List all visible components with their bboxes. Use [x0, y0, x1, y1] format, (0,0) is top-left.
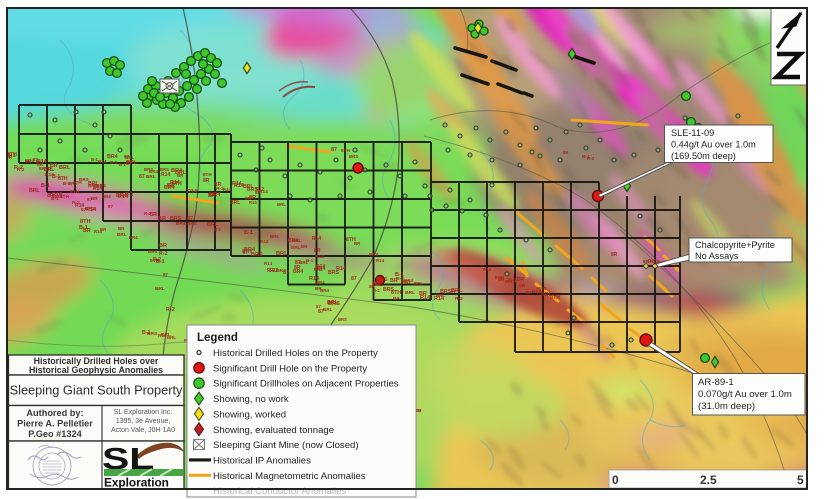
- svg-text:Showing, worked: Showing, worked: [213, 409, 286, 420]
- svg-text:B-1: B-1: [110, 160, 118, 165]
- svg-text:BRL: BRL: [291, 245, 301, 250]
- svg-text:R-2: R-2: [17, 167, 25, 172]
- svg-text:BRL: BRL: [451, 288, 463, 294]
- svg-text:87: 87: [139, 174, 145, 180]
- svg-text:R14: R14: [312, 236, 321, 242]
- svg-text:R-2: R-2: [267, 268, 275, 274]
- svg-text:R14: R14: [161, 172, 171, 178]
- svg-text:R14: R14: [376, 258, 385, 263]
- svg-text:B-1: B-1: [79, 225, 88, 231]
- svg-text:R-2: R-2: [396, 276, 404, 282]
- svg-text:R14: R14: [434, 296, 445, 302]
- svg-text:87: 87: [526, 290, 532, 296]
- svg-text:BR4: BR4: [293, 269, 303, 275]
- svg-text:8R: 8R: [203, 178, 210, 184]
- svg-text:BR4: BR4: [102, 194, 111, 199]
- svg-text:Chalcopyrite+Pyrite: Chalcopyrite+Pyrite: [695, 240, 775, 250]
- svg-text:BRL: BRL: [270, 234, 279, 239]
- svg-text:BR4: BR4: [320, 288, 329, 293]
- svg-text:BRS: BRS: [369, 252, 378, 257]
- svg-text:8TH: 8TH: [70, 189, 80, 195]
- svg-text:BR: BR: [208, 193, 216, 199]
- svg-text:B-1: B-1: [142, 330, 150, 336]
- svg-text:Significant Drill Hole on the: Significant Drill Hole on the Property: [213, 363, 367, 374]
- svg-text:BRS: BRS: [532, 289, 542, 294]
- svg-text:BRS: BRS: [187, 221, 197, 226]
- svg-text:R14: R14: [223, 187, 232, 192]
- svg-text:Sleeping Giant South Property: Sleeping Giant South Property: [10, 383, 183, 398]
- svg-text:8TH: 8TH: [7, 152, 17, 158]
- svg-text:8R: 8R: [314, 248, 321, 254]
- svg-text:Showing, no work: Showing, no work: [213, 394, 289, 405]
- svg-text:8R: 8R: [519, 283, 526, 289]
- svg-text:BR: BR: [393, 296, 400, 301]
- svg-text:BR4: BR4: [107, 154, 118, 160]
- svg-text:Historical Conductor Anomalies: Historical Conductor Anomalies: [213, 486, 347, 497]
- svg-text:R14: R14: [187, 189, 198, 195]
- svg-text:P.Geo #1324: P.Geo #1324: [28, 429, 82, 439]
- svg-text:0: 0: [612, 473, 619, 487]
- svg-text:B-1: B-1: [582, 154, 590, 160]
- svg-text:(169.50m deep): (169.50m deep): [671, 151, 736, 161]
- svg-text:B-1: B-1: [244, 230, 253, 236]
- svg-text:BRL: BRL: [327, 300, 339, 306]
- svg-text:Pierre A. Pelletier: Pierre A. Pelletier: [17, 419, 93, 429]
- svg-text:8R: 8R: [498, 277, 505, 283]
- svg-text:BRL: BRL: [230, 200, 240, 206]
- svg-text:Historical Geophysic Anomalies: Historical Geophysic Anomalies: [29, 365, 163, 375]
- svg-text:Significant Drillholes on Adja: Significant Drillholes on Adjacent Prope…: [213, 379, 399, 390]
- svg-text:R-2: R-2: [72, 200, 80, 205]
- svg-text:B-1: B-1: [306, 258, 314, 263]
- svg-text:87: 87: [316, 304, 321, 309]
- svg-text:B-1: B-1: [505, 279, 513, 285]
- svg-text:R14: R14: [264, 261, 273, 266]
- svg-text:BRL: BRL: [414, 281, 423, 286]
- svg-text:BRL: BRL: [243, 184, 254, 190]
- svg-text:Sleeping Giant Mine (now Close: Sleeping Giant Mine (now Closed): [213, 440, 359, 451]
- svg-text:B-1: B-1: [119, 162, 127, 167]
- svg-text:BRL: BRL: [155, 286, 165, 292]
- svg-text:BR4: BR4: [25, 158, 34, 163]
- svg-text:BR: BR: [100, 227, 107, 232]
- svg-text:Exploration: Exploration: [104, 476, 169, 490]
- svg-text:BR: BR: [301, 244, 308, 249]
- svg-text:BRL: BRL: [146, 174, 156, 179]
- svg-text:5: 5: [797, 473, 804, 487]
- svg-text:R14: R14: [260, 239, 269, 244]
- svg-text:R-2: R-2: [455, 296, 463, 302]
- svg-text:BR: BR: [158, 216, 166, 222]
- svg-text:8TH: 8TH: [58, 176, 68, 182]
- svg-text:BR: BR: [118, 226, 125, 231]
- svg-text:BRL: BRL: [59, 165, 71, 171]
- svg-text:87: 87: [331, 147, 337, 153]
- svg-text:8TH: 8TH: [341, 148, 350, 153]
- svg-text:BRL: BRL: [117, 232, 127, 237]
- svg-text:Legend: Legend: [197, 332, 238, 344]
- svg-text:BR: BR: [91, 196, 98, 201]
- svg-text:No Assays: No Assays: [695, 251, 739, 261]
- svg-text:8R: 8R: [47, 193, 54, 199]
- svg-text:SL Exploration Inc.: SL Exploration Inc.: [114, 409, 173, 416]
- svg-text:8R: 8R: [150, 212, 157, 218]
- svg-text:Historical Drilled Holes on th: Historical Drilled Holes on the Property: [213, 348, 378, 359]
- svg-text:BR4: BR4: [316, 280, 325, 285]
- svg-text:B-1: B-1: [41, 183, 50, 189]
- svg-text:BRL: BRL: [125, 155, 134, 160]
- svg-text:87: 87: [243, 250, 248, 255]
- svg-text:R14: R14: [315, 254, 324, 260]
- svg-text:R14: R14: [158, 333, 167, 338]
- svg-text:BRS: BRS: [328, 270, 339, 276]
- svg-text:R14: R14: [249, 200, 257, 205]
- svg-text:8R: 8R: [611, 252, 618, 258]
- svg-text:BR4: BR4: [148, 249, 157, 254]
- svg-text:BRL: BRL: [276, 251, 288, 257]
- svg-text:Acton Vale, J0H 1A0: Acton Vale, J0H 1A0: [111, 427, 175, 434]
- svg-text:Showing, evaluated tonnage: Showing, evaluated tonnage: [213, 425, 334, 436]
- svg-text:BRL: BRL: [277, 202, 286, 207]
- svg-text:Historical Magnetometric Anoma: Historical Magnetometric Anomalies: [213, 471, 366, 482]
- svg-text:8R: 8R: [643, 259, 650, 264]
- svg-text:BR4: BR4: [176, 221, 186, 227]
- svg-text:BRL: BRL: [292, 238, 302, 243]
- svg-text:(31.0m deep): (31.0m deep): [698, 401, 755, 412]
- svg-text:1395, 3e Avenue,: 1395, 3e Avenue,: [116, 418, 170, 425]
- svg-text:8TH: 8TH: [73, 180, 82, 185]
- svg-text:BR: BR: [159, 243, 167, 249]
- svg-text:BRS: BRS: [338, 317, 347, 322]
- svg-text:R14: R14: [316, 264, 326, 270]
- svg-text:8TH: 8TH: [203, 172, 212, 177]
- svg-text:R-2: R-2: [153, 257, 161, 263]
- svg-text:BRL: BRL: [44, 167, 54, 173]
- svg-text:8TH: 8TH: [391, 290, 401, 296]
- svg-text:BRL: BRL: [323, 307, 333, 312]
- svg-text:SLE-11-09: SLE-11-09: [671, 128, 714, 138]
- svg-text:BR: BR: [354, 241, 361, 246]
- svg-text:0.44g/t Au over 1.0m: 0.44g/t Au over 1.0m: [671, 140, 756, 150]
- svg-text:87: 87: [318, 309, 324, 315]
- svg-text:R14: R14: [37, 159, 47, 165]
- svg-text:BR4: BR4: [404, 278, 414, 283]
- svg-text:BRL: BRL: [29, 188, 40, 194]
- svg-text:8TH: 8TH: [80, 219, 91, 225]
- svg-text:R-2: R-2: [373, 288, 380, 293]
- svg-text:BRL: BRL: [126, 160, 138, 166]
- svg-text:Historical IP Anomalies: Historical IP Anomalies: [213, 455, 311, 466]
- svg-text:Authored by:: Authored by:: [26, 408, 83, 418]
- svg-text:BR4: BR4: [129, 235, 138, 240]
- svg-text:R14: R14: [98, 159, 107, 164]
- svg-text:R14: R14: [259, 189, 268, 195]
- svg-text:BRL: BRL: [207, 222, 219, 228]
- svg-text:0.070g/t Au over 1.0m: 0.070g/t Au over 1.0m: [698, 389, 792, 400]
- svg-text:8TH: 8TH: [550, 295, 560, 301]
- svg-text:R-2: R-2: [166, 307, 175, 313]
- svg-text:8R: 8R: [517, 277, 524, 283]
- svg-text:BR4: BR4: [164, 185, 174, 191]
- svg-text:87: 87: [283, 270, 289, 276]
- svg-text:2.5: 2.5: [700, 473, 717, 487]
- svg-text:87: 87: [416, 408, 422, 413]
- svg-text:87: 87: [163, 272, 169, 277]
- svg-text:R14: R14: [420, 295, 431, 301]
- svg-text:BR4: BR4: [96, 183, 106, 189]
- svg-text:87: 87: [351, 276, 357, 282]
- svg-text:AR-89-1: AR-89-1: [698, 377, 734, 388]
- svg-text:BRS: BRS: [349, 154, 358, 159]
- svg-text:BRS: BRS: [85, 206, 95, 211]
- svg-text:87: 87: [108, 204, 114, 209]
- svg-text:BR4: BR4: [171, 168, 183, 174]
- svg-text:8R: 8R: [563, 150, 569, 155]
- svg-text:R14: R14: [483, 267, 491, 272]
- svg-text:R14: R14: [118, 194, 129, 200]
- svg-text:8R: 8R: [376, 281, 383, 287]
- svg-text:BRL: BRL: [405, 290, 415, 296]
